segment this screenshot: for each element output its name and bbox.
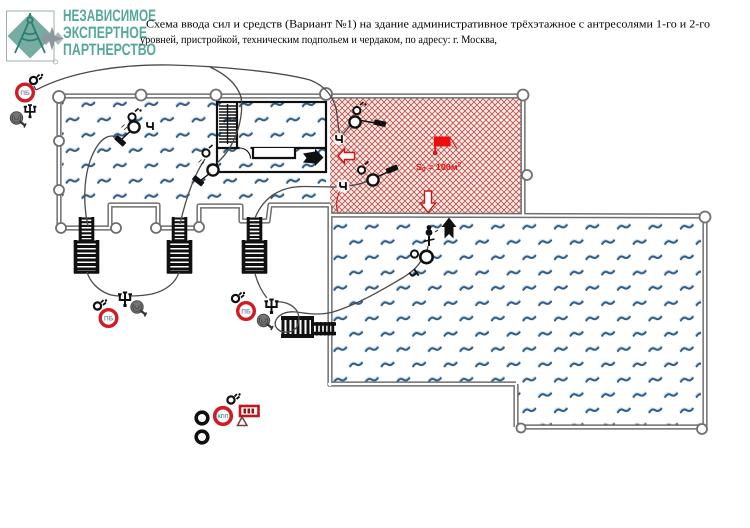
svg-text:НЕЗАВИСИМОЕ: НЕЗАВИСИМОЕ — [63, 7, 156, 25]
svg-text:Схема ввода сил и средств (Вар: Схема ввода сил и средств (Вариант №1) н… — [146, 19, 710, 31]
svg-text:КПП: КПП — [217, 414, 228, 420]
svg-text:ЭКСПЕРТНОЕ: ЭКСПЕРТНОЕ — [63, 24, 147, 42]
svg-text:уровней, пристройкой, техничес: уровней, пристройкой, техническим подпол… — [140, 34, 497, 46]
